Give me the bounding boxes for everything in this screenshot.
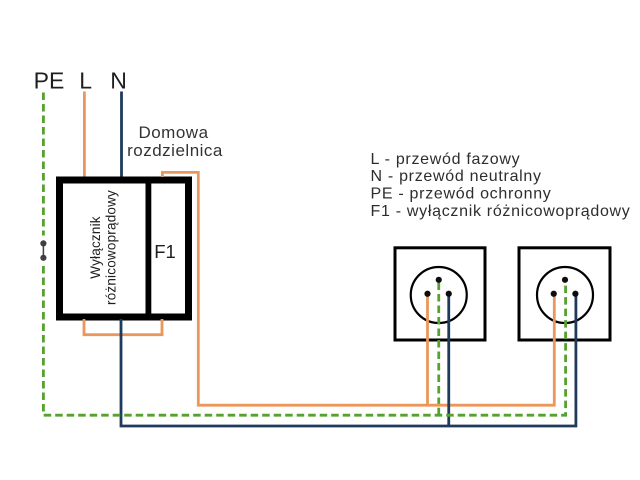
svg-text:Domowa: Domowa bbox=[138, 123, 208, 142]
svg-text:N: N bbox=[110, 68, 127, 94]
svg-text:Wyłącznik: Wyłącznik bbox=[88, 216, 103, 278]
svg-text:PE: PE bbox=[34, 68, 65, 94]
svg-text:różnicowoprądowy: różnicowoprądowy bbox=[104, 190, 119, 305]
svg-text:L: L bbox=[79, 68, 92, 94]
svg-text:L - przewód fazowy: L - przewód fazowy bbox=[371, 151, 521, 168]
svg-text:N - przewód neutralny: N - przewód neutralny bbox=[371, 168, 542, 185]
svg-text:rozdzielnica: rozdzielnica bbox=[127, 141, 223, 160]
svg-text:F1: F1 bbox=[154, 241, 176, 262]
svg-text:PE - przewód ochronny: PE - przewód ochronny bbox=[371, 186, 552, 203]
svg-text:F1 - wyłącznik różnicowoprądow: F1 - wyłącznik różnicowoprądowy bbox=[371, 203, 631, 220]
